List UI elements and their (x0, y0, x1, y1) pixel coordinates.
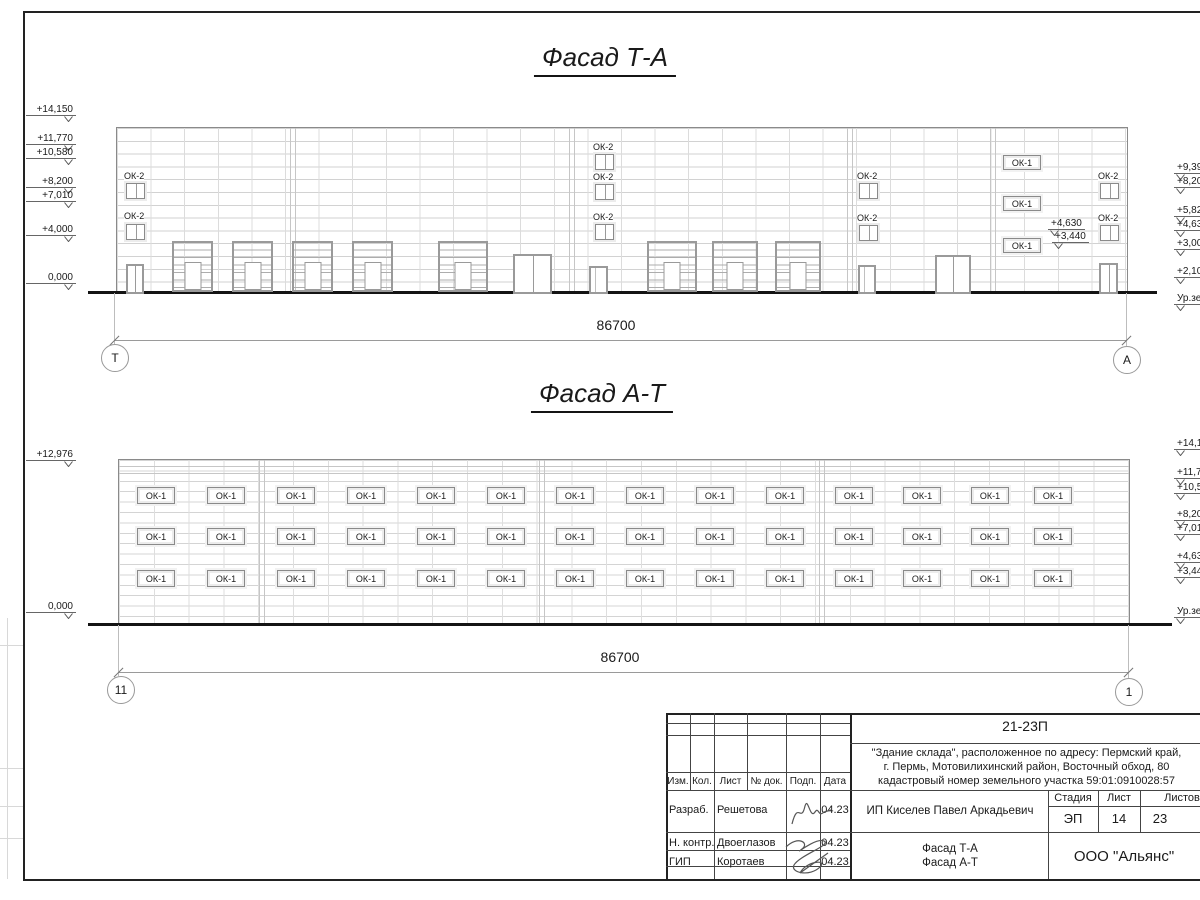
sheet-frame-top (23, 11, 1200, 13)
ok1-window: ОК-1 (696, 487, 734, 504)
gate-wicket-door (664, 262, 681, 290)
sheet-frame-left (23, 11, 25, 881)
ok2-window-label: ОК-2 (124, 171, 144, 181)
elevation-mark: +14,15 (1174, 438, 1200, 456)
elevation-mark: 0,000 (26, 272, 76, 290)
ok2-window (595, 224, 614, 240)
col-header-data: Дата (820, 776, 850, 787)
elevation-mark: 0,000 (26, 601, 76, 619)
ok1-window: ОК-1 (137, 487, 175, 504)
facade-ta-title: Фасад Т-А (534, 42, 676, 77)
facade-at-title: Фасад А-Т (531, 378, 673, 413)
row-name: Коротаев (717, 856, 765, 868)
margin-line (0, 806, 23, 807)
gate-wicket-door (244, 262, 261, 290)
ok1-window: ОК-1 (835, 570, 873, 587)
grid-axis-bubble: 1 (1115, 678, 1143, 706)
margin-line (7, 618, 8, 879)
margin-line (0, 768, 23, 769)
titleblock-line (666, 832, 1200, 833)
ok1-window: ОК-1 (1003, 196, 1041, 211)
sheet-subject-line: Фасад А-Т (852, 857, 1048, 869)
ok1-window: ОК-1 (556, 570, 594, 587)
col-header-podp: Подп. (786, 776, 820, 787)
sectional-gate (352, 241, 393, 292)
ok1-window: ОК-1 (903, 487, 941, 504)
ok1-window: ОК-1 (417, 487, 455, 504)
ok2-window (1100, 225, 1119, 241)
ok1-window: ОК-1 (1003, 155, 1041, 170)
row-role: Разраб. (669, 804, 709, 816)
ok2-window (859, 183, 878, 199)
sectional-gate (712, 241, 758, 292)
ok1-window: ОК-1 (277, 570, 315, 587)
ok1-window: ОК-1 (971, 487, 1009, 504)
ok1-window: ОК-1 (766, 487, 804, 504)
titleblock-line (666, 790, 1200, 791)
stage-value: ЭП (1048, 811, 1098, 826)
door (935, 255, 971, 294)
sheet-frame-bottom (23, 879, 1200, 881)
dimension-line-ta (114, 340, 1126, 341)
sheet-label: Лист (1098, 792, 1140, 804)
gate-wicket-door (364, 262, 381, 290)
ok2-window-label: ОК-2 (1098, 171, 1118, 181)
col-header-doc: № док. (747, 776, 786, 787)
margin-line (0, 645, 23, 646)
elevation-mark: Ур.зе (1174, 293, 1200, 311)
ok1-window: ОК-1 (696, 570, 734, 587)
elevation-mark: +2,10 (1174, 266, 1200, 284)
ok2-window (126, 224, 145, 240)
sectional-gate (172, 241, 213, 292)
row-role: ГИП (669, 856, 691, 868)
margin-line (0, 838, 23, 839)
gate-wicket-door (184, 262, 201, 290)
row-name: Двоеглазов (717, 837, 775, 849)
project-address-line: "Здание склада", расположенное по адресу… (853, 747, 1200, 759)
ok1-window: ОК-1 (766, 570, 804, 587)
ok1-window: ОК-1 (487, 528, 525, 545)
client-name: ИП Киселев Павел Аркадьевич (852, 805, 1048, 817)
ok1-window: ОК-1 (207, 528, 245, 545)
ok1-window: ОК-1 (1034, 570, 1072, 587)
grid-axis-bubble: А (1113, 346, 1141, 374)
elevation-mark: Ур.зем (1174, 606, 1200, 624)
project-address-line: кадастровый номер земельного участка 59:… (853, 775, 1200, 787)
door (858, 265, 876, 294)
sectional-gate (647, 241, 697, 292)
expansion-joint (259, 460, 265, 625)
ok2-window-label: ОК-2 (857, 213, 877, 223)
grid-axis-bubble: 11 (107, 676, 135, 704)
signature (780, 833, 842, 879)
sheets-label: Листов (1148, 792, 1200, 804)
elevation-mark: +3,000 (1174, 238, 1200, 256)
sheet-subject-line: Фасад Т-А (852, 843, 1048, 855)
row-name: Решетова (717, 804, 767, 816)
expansion-joint (569, 128, 575, 293)
ok2-window (1100, 183, 1119, 199)
ok1-window: ОК-1 (556, 528, 594, 545)
ok1-window: ОК-1 (277, 487, 315, 504)
ok1-window: ОК-1 (347, 487, 385, 504)
ok2-window (595, 154, 614, 170)
ok1-window: ОК-1 (903, 570, 941, 587)
ok1-window: ОК-1 (417, 570, 455, 587)
sectional-gate (775, 241, 821, 292)
ok1-window: ОК-1 (137, 570, 175, 587)
ok1-window: ОК-1 (835, 487, 873, 504)
ok2-window-label: ОК-2 (593, 212, 613, 222)
extension-line (118, 625, 119, 676)
ok1-window: ОК-1 (971, 528, 1009, 545)
titleblock-line (666, 723, 850, 724)
ok1-window: ОК-1 (347, 570, 385, 587)
ok2-window (595, 184, 614, 200)
sectional-gate (438, 241, 488, 292)
ok1-window: ОК-1 (137, 528, 175, 545)
ok1-window: ОК-1 (1034, 487, 1072, 504)
ok1-window: ОК-1 (277, 528, 315, 545)
ok1-window: ОК-1 (347, 528, 385, 545)
door (1099, 263, 1118, 294)
ok1-window: ОК-1 (556, 487, 594, 504)
ok2-window (126, 183, 145, 199)
ok1-window: ОК-1 (971, 570, 1009, 587)
ok1-window: ОК-1 (696, 528, 734, 545)
stage-label: Стадия (1048, 792, 1098, 804)
ok2-window-label: ОК-2 (593, 142, 613, 152)
expansion-joint (990, 128, 996, 293)
col-header-izm: Изм. (666, 776, 690, 787)
door (589, 266, 608, 294)
door (513, 254, 552, 294)
ok2-window-label: ОК-2 (593, 172, 613, 182)
drawing-sheet: Фасад Т-А 86700 Фасад А-Т 86700 (0, 0, 1200, 900)
elevation-mark: +7,010 (26, 190, 76, 208)
titleblock-line (666, 772, 850, 773)
ok2-window (859, 225, 878, 241)
gate-wicket-door (790, 262, 807, 290)
titleblock-line (714, 713, 715, 879)
ok2-window-label: ОК-2 (124, 211, 144, 221)
project-address-line: г. Пермь, Мотовилихинский район, Восточн… (853, 761, 1200, 773)
ok1-window: ОК-1 (417, 528, 455, 545)
ok1-window: ОК-1 (207, 487, 245, 504)
elevation-mark: +7,01 (1174, 523, 1200, 541)
ok1-window: ОК-1 (626, 528, 664, 545)
elevation-mark: +4,63 (1174, 219, 1200, 237)
ground-line-at (88, 623, 1172, 626)
row-role: Н. контр. (669, 837, 714, 849)
ok2-window-label: ОК-2 (857, 171, 877, 181)
sectional-gate (232, 241, 273, 292)
sheets-value: 23 (1140, 811, 1180, 826)
ok1-window: ОК-1 (487, 570, 525, 587)
parapet-line (119, 466, 1129, 467)
gate-wicket-door (455, 262, 472, 290)
elevation-mark: +3,440 (1052, 231, 1089, 249)
expansion-joint (539, 460, 545, 625)
col-header-list: Лист (714, 776, 747, 787)
elevation-mark: +14,150 (26, 104, 76, 122)
sheet-value: 14 (1098, 811, 1140, 826)
expansion-joint (847, 128, 853, 293)
elevation-mark: +4,000 (26, 224, 76, 242)
elevation-mark: +10,580 (26, 147, 76, 165)
dimension-value-ta: 86700 (556, 317, 676, 333)
company-name: ООО "Альянс" (1048, 848, 1200, 865)
project-code: 21-23П (850, 718, 1200, 734)
ok1-window: ОК-1 (487, 487, 525, 504)
ok1-window: ОК-1 (903, 528, 941, 545)
ok2-window-label: ОК-2 (1098, 213, 1118, 223)
expansion-joint (819, 460, 825, 625)
ok1-window: ОК-1 (1003, 238, 1041, 253)
elevation-mark: +3,44 (1174, 566, 1200, 584)
elevation-mark: +12,976 (26, 449, 76, 467)
dimension-line-at (118, 672, 1128, 673)
elevation-mark: +10,58 (1174, 482, 1200, 500)
gate-wicket-door (727, 262, 744, 290)
titleblock-line (666, 713, 668, 879)
sectional-gate (292, 241, 333, 292)
ok1-window: ОК-1 (207, 570, 245, 587)
ok1-window: ОК-1 (766, 528, 804, 545)
parapet-line (119, 473, 1129, 474)
ok1-window: ОК-1 (626, 570, 664, 587)
ok1-window: ОК-1 (835, 528, 873, 545)
col-header-kol: Кол. (690, 776, 714, 787)
grid-axis-bubble: Т (101, 344, 129, 372)
ok1-window: ОК-1 (626, 487, 664, 504)
titleblock-line (1048, 806, 1200, 807)
door (126, 264, 144, 294)
titleblock-line (850, 743, 1200, 744)
gate-wicket-door (304, 262, 321, 290)
signature (788, 794, 834, 830)
dimension-value-at: 86700 (560, 649, 680, 665)
elevation-mark: +8,20 (1174, 176, 1200, 194)
extension-line (114, 293, 115, 344)
titleblock-line (666, 735, 850, 736)
ok1-window: ОК-1 (1034, 528, 1072, 545)
